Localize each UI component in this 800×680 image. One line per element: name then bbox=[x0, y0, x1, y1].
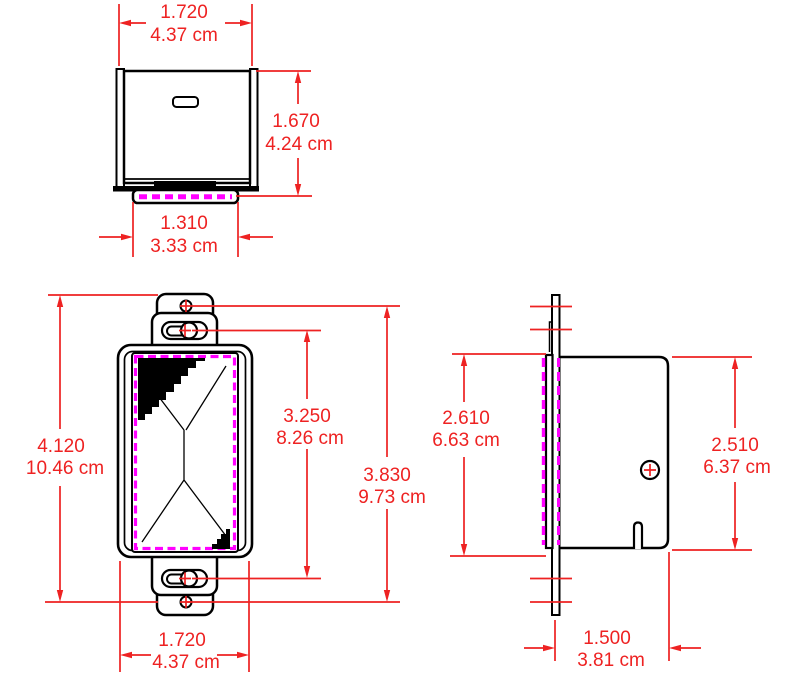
sideview-body-dim-cm: 6.37 cm bbox=[703, 458, 771, 478]
arrowhead bbox=[57, 590, 63, 602]
top-view bbox=[113, 69, 259, 203]
frontview-width-dim-cm: 4.37 cm bbox=[152, 653, 220, 673]
sideview-body-dim-inches: 2.510 bbox=[711, 436, 759, 456]
arrowhead bbox=[461, 354, 467, 366]
topview-width-dim-inches: 1.720 bbox=[160, 3, 208, 23]
topview-lip-dim-inches: 1.310 bbox=[160, 214, 208, 234]
side-plate-flange bbox=[546, 355, 553, 548]
frontview-height-dim-inches: 4.120 bbox=[37, 437, 85, 457]
top-view-body bbox=[124, 71, 250, 183]
arrowhead bbox=[237, 652, 249, 658]
frontview-slot-span-dim-inches: 3.250 bbox=[283, 407, 331, 427]
sideview-flange-dim-inches: 2.610 bbox=[442, 409, 490, 429]
arrowhead bbox=[238, 234, 250, 240]
arrowhead bbox=[384, 306, 390, 318]
side-box-notch bbox=[634, 523, 642, 550]
topview-width-dim-cm: 4.37 cm bbox=[150, 26, 218, 46]
top-view-slot bbox=[173, 97, 198, 107]
drawing-geometry bbox=[0, 0, 800, 680]
arrowhead bbox=[304, 330, 310, 342]
top-view-hinge-bar bbox=[154, 181, 216, 186]
arrowhead bbox=[121, 234, 133, 240]
topview-lip-dim-cm: 3.33 cm bbox=[150, 237, 218, 257]
arrowhead bbox=[57, 295, 63, 307]
frontview-hole-span-dim-inches: 3.830 bbox=[363, 466, 411, 486]
frontview-slot-span-dim-cm: 8.26 cm bbox=[276, 429, 344, 449]
arrowhead bbox=[461, 544, 467, 556]
arrowhead bbox=[732, 538, 738, 550]
arrowhead bbox=[120, 652, 132, 658]
arrowhead bbox=[295, 184, 301, 196]
sideview-depth-dim-inches: 1.500 bbox=[583, 629, 631, 649]
arrowhead bbox=[304, 566, 310, 578]
topview-height-dim-cm: 4.24 cm bbox=[265, 135, 333, 155]
topview-height-dim-inches: 1.670 bbox=[272, 112, 320, 132]
dimensioned-drawing: 1.720 4.37 cm 1.670 4.24 cm 1.310 3.33 c… bbox=[0, 0, 800, 680]
sideview-depth-dim-cm: 3.81 cm bbox=[577, 651, 645, 671]
frontview-width-dim-inches: 1.720 bbox=[158, 631, 206, 651]
arrowhead bbox=[669, 645, 681, 651]
front-view bbox=[118, 294, 252, 615]
frontview-hole-span-dim-cm: 9.73 cm bbox=[358, 488, 426, 508]
side-box bbox=[558, 357, 668, 548]
arrowhead bbox=[119, 20, 131, 26]
sideview-flange-extensions bbox=[450, 354, 546, 556]
arrowhead bbox=[295, 71, 301, 83]
arrowhead bbox=[732, 357, 738, 369]
arrowhead bbox=[240, 20, 252, 26]
arrowhead bbox=[543, 645, 555, 651]
arrowhead bbox=[384, 590, 390, 602]
frontview-height-dim-cm: 10.46 cm bbox=[26, 459, 104, 479]
side-view bbox=[544, 295, 669, 615]
sideview-flange-dim-cm: 6.63 cm bbox=[432, 431, 500, 451]
